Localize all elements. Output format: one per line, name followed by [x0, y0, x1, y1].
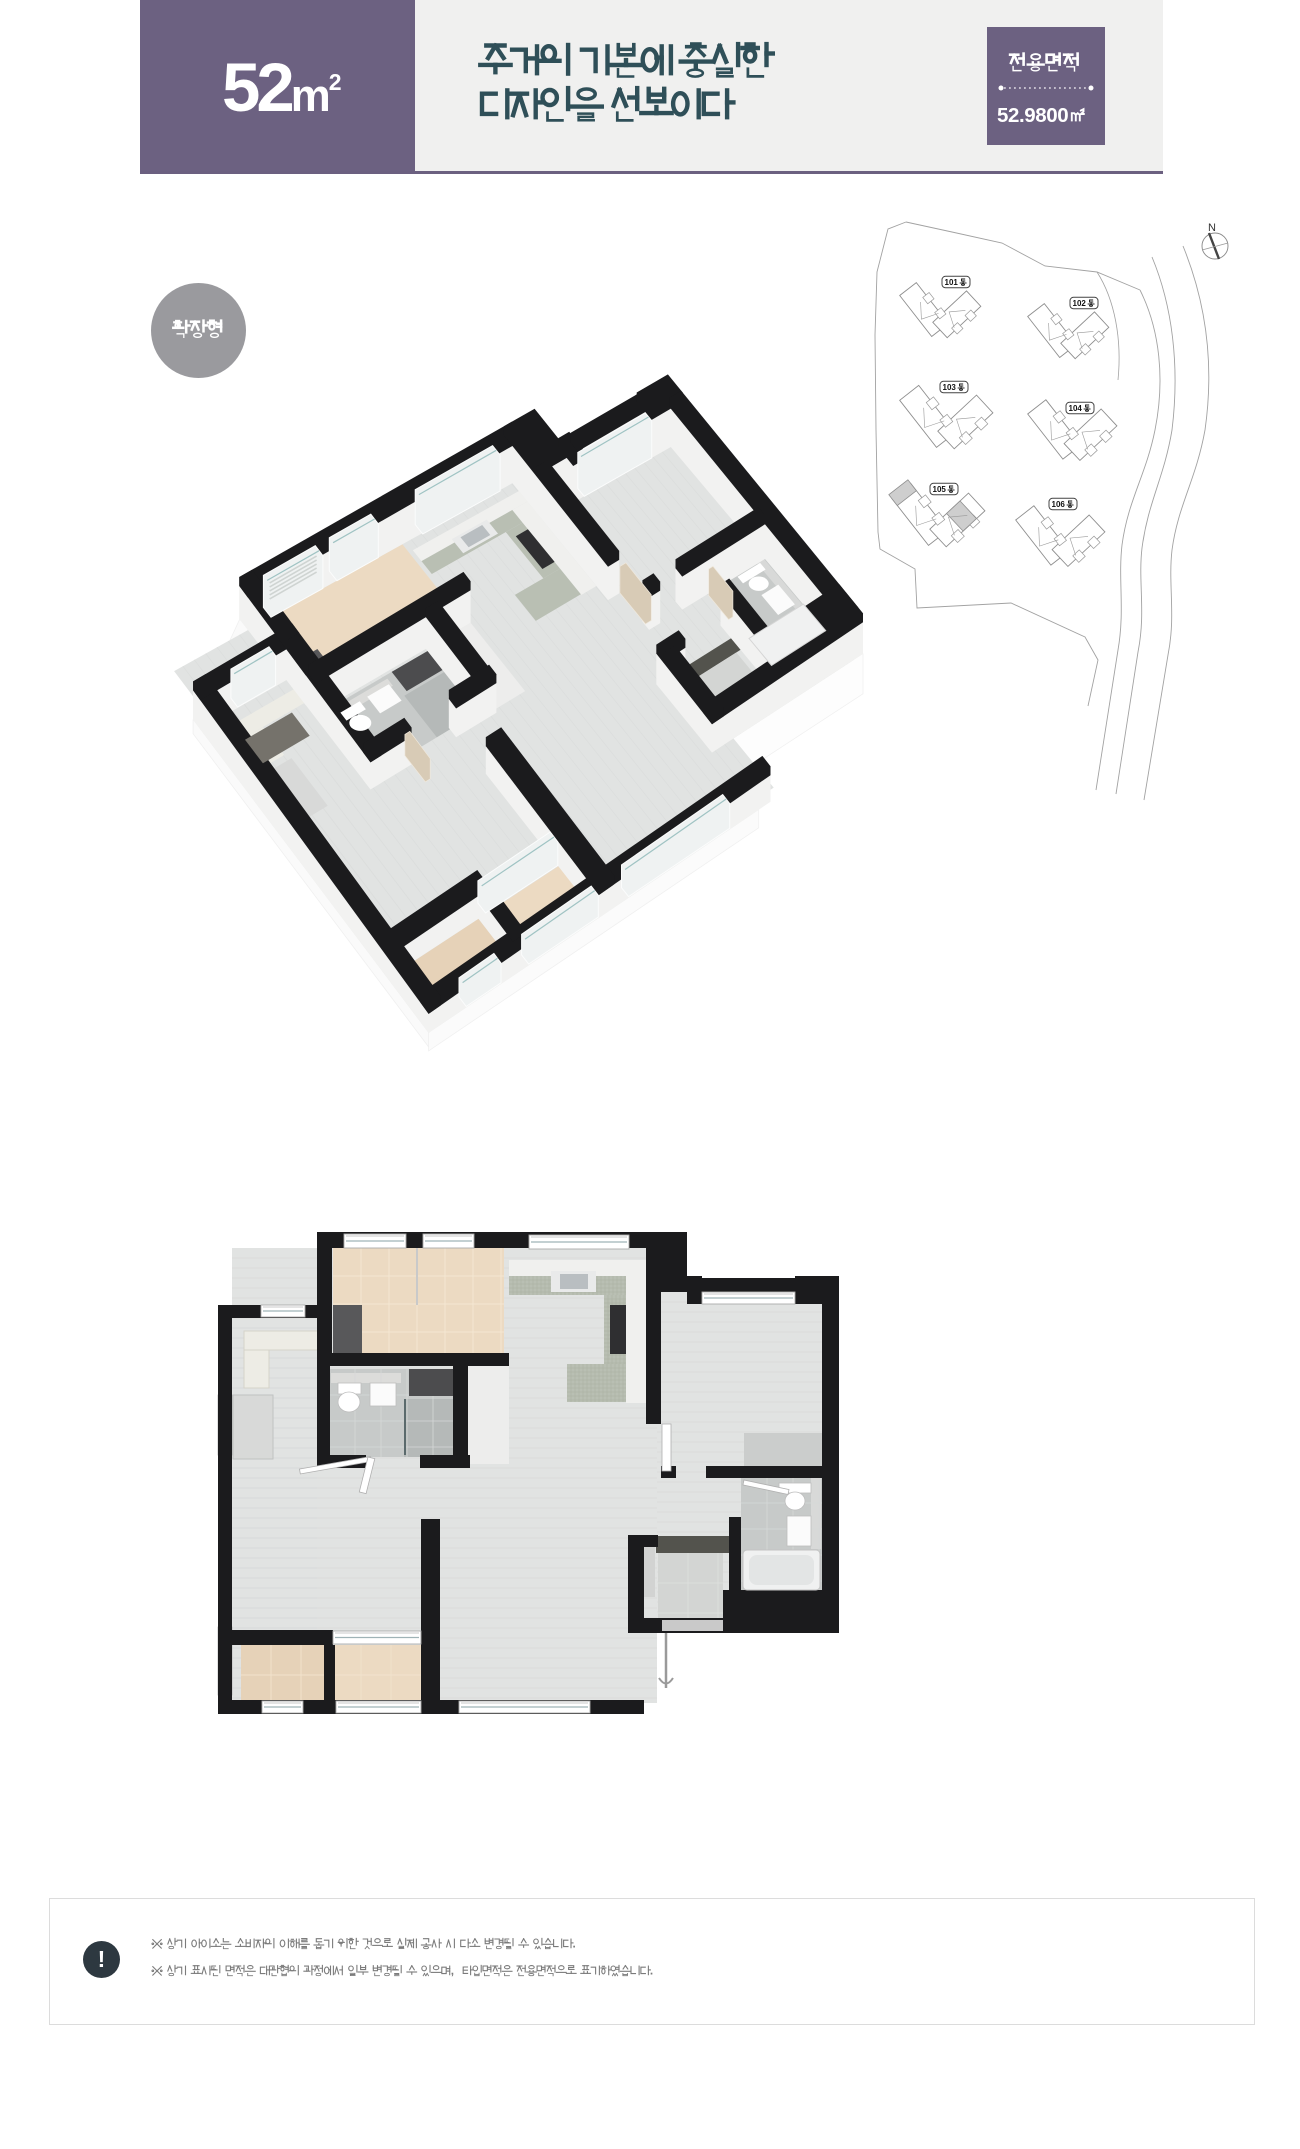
svg-text:,: , [451, 1964, 454, 1978]
svg-text:.: . [650, 1964, 653, 1978]
svg-text:.: . [573, 1937, 576, 1951]
svg-text:52.9800: 52.9800 [997, 104, 1068, 127]
